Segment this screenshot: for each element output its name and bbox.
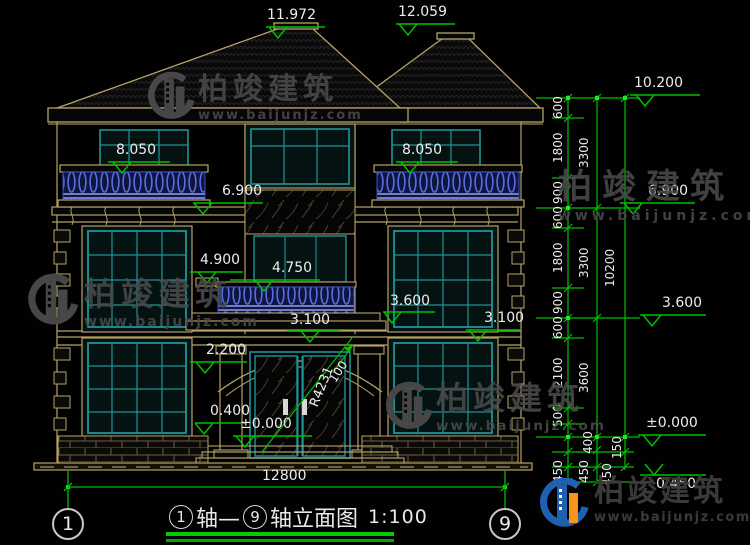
brand-logo-icon <box>538 476 590 534</box>
title-axis-end-circle: 9 <box>243 505 267 529</box>
title-underline-thin <box>166 539 394 542</box>
axis-bubble-left: 1 <box>52 508 84 540</box>
elevation-label-cornice-left: 6.900 <box>222 184 262 198</box>
elevation-label-ground-right: ±0.000 <box>646 416 698 430</box>
dim-label: 400 <box>582 431 594 454</box>
elevation-label-band-right: 3.100 <box>484 311 524 325</box>
second-floor-window-right <box>388 226 498 332</box>
dim-label: 900 <box>552 291 564 314</box>
dim-label: 3300 <box>578 247 590 278</box>
elevation-label-balcony-center: 4.750 <box>272 261 312 275</box>
watermark-logo-icon <box>146 70 196 126</box>
elevation-label-floor2-right-chain: 3.600 <box>662 296 702 310</box>
elevation-label-balcony-right: 8.050 <box>402 143 442 157</box>
title-name: 轴立面图 <box>270 501 358 533</box>
dim-label: 1800 <box>552 242 564 273</box>
title-underline-thick <box>166 532 394 536</box>
first-floor-window-left <box>82 338 192 438</box>
title-axis-start-circle: 1 <box>169 505 193 529</box>
watermark-logo-icon <box>384 380 434 436</box>
title-connector: 轴— <box>196 501 240 533</box>
dim-label: 150 <box>611 436 623 459</box>
dim-label: 3300 <box>578 137 590 168</box>
elevation-label-ridge-left: 11.972 <box>267 8 316 22</box>
watermark-logo-icon <box>26 272 80 332</box>
elevation-label-balcony-left: 8.050 <box>116 143 156 157</box>
elevation-label-ledge: 4.900 <box>200 253 240 267</box>
elevation-label-porch-top: 3.600 <box>390 294 430 308</box>
watermark-center-low: 柏竣建筑 www.baijunjz.com <box>436 382 606 434</box>
watermark-right: 柏竣建筑 www.baijunjz.com <box>558 170 750 224</box>
balcony-left <box>58 165 210 207</box>
elevation-label-ground-center: ±0.000 <box>240 417 292 431</box>
elevation-label-band-center: 3.100 <box>290 313 330 327</box>
brand-logo: 柏竣建筑 www.baijunjz.com <box>594 476 750 525</box>
dim-label: 1800 <box>552 132 564 163</box>
watermark-top: 柏竣建筑 www.baijunjz.com <box>198 74 363 123</box>
elevation-label-door-head: 2.200 <box>206 343 246 357</box>
overall-width-dim: 12800 <box>262 469 307 483</box>
elevation-label-ridge-right: 12.059 <box>398 5 447 19</box>
axis-bubble-right: 9 <box>489 508 521 540</box>
dim-label: 600 <box>552 316 564 339</box>
dim-label: 600 <box>552 96 564 119</box>
elevation-label-roof-right: 10.200 <box>634 76 683 90</box>
title-scale: 1:100 <box>368 506 428 528</box>
dim-label: 10200 <box>604 249 616 287</box>
cad-canvas: 11.972 12.059 10.200 8.050 8.050 6.900 6… <box>0 0 750 545</box>
watermark-left: 柏竣建筑 www.baijunjz.com <box>84 278 259 330</box>
balcony-right <box>372 165 524 207</box>
drawing-title: 1 轴— 9 轴立面图 1:100 <box>166 501 428 533</box>
